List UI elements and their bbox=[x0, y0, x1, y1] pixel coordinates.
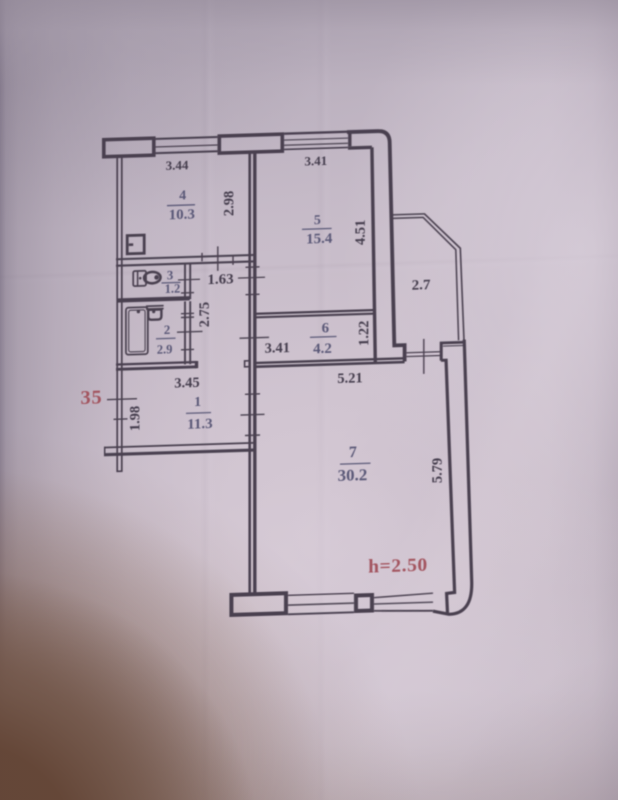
svg-text:2: 2 bbox=[164, 322, 170, 337]
svg-text:3.41: 3.41 bbox=[304, 153, 327, 169]
svg-text:1.63: 1.63 bbox=[207, 271, 233, 288]
svg-text:3.44: 3.44 bbox=[166, 157, 189, 173]
svg-text:2.75: 2.75 bbox=[197, 302, 213, 328]
svg-text:1.2: 1.2 bbox=[165, 282, 181, 296]
svg-text:5.79: 5.79 bbox=[430, 457, 446, 483]
svg-text:h=2.50: h=2.50 bbox=[368, 555, 428, 578]
svg-text:1.22: 1.22 bbox=[356, 320, 372, 346]
svg-text:4.2: 4.2 bbox=[313, 341, 332, 358]
svg-text:5: 5 bbox=[314, 213, 321, 228]
svg-text:2.7: 2.7 bbox=[412, 277, 431, 294]
svg-text:6: 6 bbox=[322, 320, 330, 336]
svg-text:2.98: 2.98 bbox=[222, 190, 238, 216]
svg-text:1.98: 1.98 bbox=[128, 406, 144, 432]
svg-text:1: 1 bbox=[194, 395, 201, 410]
svg-text:3: 3 bbox=[167, 267, 174, 282]
svg-text:4.51: 4.51 bbox=[353, 219, 369, 245]
svg-text:30.2: 30.2 bbox=[338, 465, 368, 485]
svg-text:4: 4 bbox=[179, 188, 186, 203]
svg-text:2.9: 2.9 bbox=[157, 342, 173, 356]
svg-text:3.45: 3.45 bbox=[174, 375, 199, 392]
svg-text:11.3: 11.3 bbox=[187, 416, 212, 433]
svg-text:5.21: 5.21 bbox=[337, 370, 362, 387]
svg-text:7: 7 bbox=[349, 444, 357, 461]
svg-text:3.41: 3.41 bbox=[265, 340, 290, 357]
svg-text:15.4: 15.4 bbox=[306, 231, 333, 248]
svg-text:35: 35 bbox=[80, 386, 102, 409]
svg-text:10.3: 10.3 bbox=[169, 207, 195, 224]
